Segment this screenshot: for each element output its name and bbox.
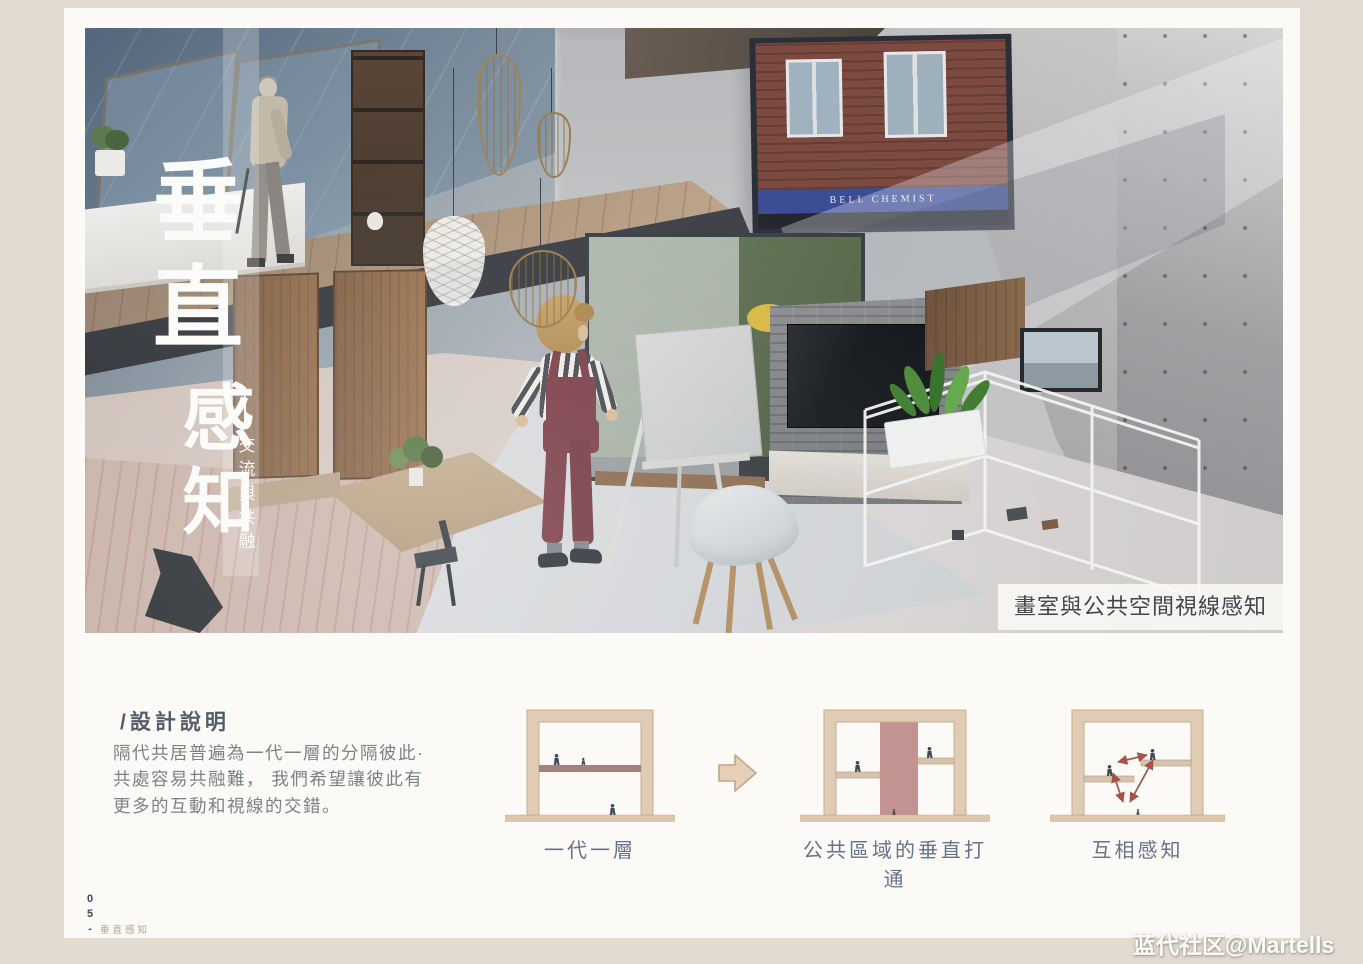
hero-caption-band: 畫室與公共空間視線感知 (998, 584, 1283, 630)
chair-leg (693, 555, 716, 624)
diagram-ground (800, 815, 990, 822)
figure-leg (265, 162, 291, 263)
chair-leg (766, 553, 798, 620)
diagram-house-frame (527, 710, 653, 815)
diagram-floor-slab (918, 758, 954, 764)
figure-icon (554, 754, 560, 765)
watermark: 蓝代社区@Martells (1133, 926, 1334, 960)
chair-leg (755, 560, 773, 630)
figure-shoe (277, 254, 294, 263)
design-notes-heading: /設計說明 (120, 706, 230, 736)
diagram-mutual-perception (1050, 700, 1225, 828)
page-footer-caption: 垂直感知 (100, 922, 150, 936)
figure-leg (541, 443, 567, 544)
white-chair (673, 480, 818, 633)
page-number: 05- (84, 893, 96, 938)
pendant-cord (551, 68, 552, 114)
easel-canvas (634, 324, 762, 466)
diagram-floor-slab (1084, 776, 1134, 782)
chair-seat-shell (684, 479, 802, 570)
plant-pot (95, 150, 125, 176)
chair-leg (446, 564, 456, 606)
presentation-page: BELL CHEMIST (0, 0, 1363, 964)
shelf-object (1006, 507, 1027, 522)
chair-leg (416, 564, 426, 606)
page-title-vertical-top: 垂直 (123, 154, 253, 366)
shelf-vase (367, 212, 383, 230)
hero-rendering: BELL CHEMIST (85, 28, 1283, 633)
design-notes-line: 更多的互動和視線的交錯。 (113, 793, 469, 819)
chair-leg (726, 563, 737, 633)
pendant-cord (453, 68, 454, 218)
page-subtitle-vertical: 交流與共融 (231, 396, 259, 556)
diagram-void-band (880, 722, 918, 815)
figure-face (578, 325, 588, 341)
design-notes-line: 共處容易共融難， 我們希望讓彼此有 (113, 766, 469, 792)
pendant-cord (496, 28, 497, 56)
table-plant (421, 446, 443, 468)
diagram-floor-slab (539, 765, 641, 772)
chair-seat (414, 546, 458, 568)
dark-dining-chair (413, 520, 465, 608)
figure-icon (582, 758, 586, 765)
figure-hand (516, 415, 528, 427)
pendant-cord (540, 178, 541, 252)
shelf-object (1042, 519, 1059, 530)
design-notes-body: 隔代共居普遍為一代一層的分隔彼此· 共處容易共融難， 我們希望讓彼此有 更多的互… (113, 740, 469, 819)
figure-icon (1136, 809, 1139, 815)
figure-icon (927, 747, 933, 758)
diagram-one-generation-per-floor (505, 700, 675, 828)
figure-hair-bun (574, 303, 594, 322)
white-frame-shelving (857, 298, 1207, 633)
diagram-label: 一代一層 (497, 834, 683, 863)
diagram-label: 公共區域的垂直打通 (793, 834, 997, 892)
figure-icon (1107, 765, 1113, 776)
table-vase (409, 468, 423, 486)
figure-icon (1150, 749, 1156, 760)
diagram-ground (505, 815, 675, 822)
shelf-object (952, 530, 964, 540)
facade-window (884, 51, 947, 138)
diagram-vertical-opening (800, 700, 990, 828)
figure-icon (855, 761, 861, 772)
diagram-label: 互相感知 (1043, 834, 1232, 863)
diagram-ground (1050, 815, 1225, 822)
wood-shelf-unit (351, 50, 425, 266)
figure-shoe (538, 552, 569, 568)
diagram-floor-slab (836, 772, 880, 778)
diagram-floor-slab (1141, 760, 1191, 766)
subtitle-dash (244, 396, 246, 426)
subtitle-text: 交流與共融 (233, 436, 258, 556)
figure-icon (610, 804, 616, 815)
arrow-right-icon (716, 750, 760, 796)
facade-window (786, 59, 843, 138)
design-notes-line: 隔代共居普遍為一代一層的分隔彼此· (113, 740, 469, 766)
plant-leaves (105, 130, 129, 150)
